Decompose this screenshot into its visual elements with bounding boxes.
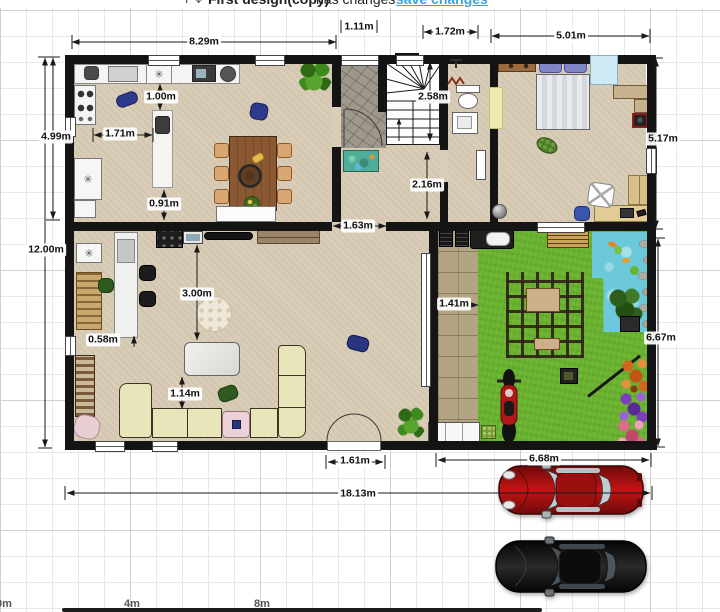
bath-mat[interactable] (489, 87, 503, 129)
window-kitchen-2[interactable] (255, 55, 285, 66)
outdoor-speaker[interactable] (455, 230, 469, 247)
fish (621, 257, 630, 264)
dining-chair[interactable] (214, 189, 229, 204)
wall-mid-right[interactable] (386, 222, 655, 231)
dim-island-top: 1.00m (144, 91, 178, 104)
dim-patio-door: 1.61m (338, 455, 372, 468)
bed-duvet[interactable] (536, 74, 590, 130)
car-black[interactable] (493, 536, 649, 597)
changes-status: has changes (316, 0, 395, 7)
dim-bar-gap: 0.58m (86, 334, 120, 347)
garden-box-icon (564, 372, 573, 380)
fridge[interactable]: ✳ (74, 158, 102, 200)
dim-total-height: 12.00m (26, 244, 66, 257)
planter-box[interactable] (620, 316, 640, 332)
dining-chair[interactable] (277, 189, 292, 204)
save-changes-link[interactable]: save changes (396, 0, 488, 7)
garden-path[interactable] (438, 230, 478, 441)
wall-mid-left[interactable] (65, 222, 332, 231)
wall-bath-bedroom[interactable] (490, 55, 498, 222)
dining-chair[interactable] (277, 143, 292, 158)
bar-stool[interactable] (139, 265, 156, 281)
laptop[interactable] (620, 208, 634, 218)
dim-kitchen-height: 4.99m (39, 131, 73, 144)
corner-sofa-top[interactable] (613, 85, 648, 99)
car-red[interactable] (496, 461, 646, 519)
freezer-counter[interactable]: ✳ (146, 64, 172, 84)
dining-sideboard[interactable] (216, 206, 276, 222)
garden-planter-green[interactable] (481, 425, 496, 439)
patio-door-threshold[interactable] (327, 441, 381, 451)
zoom-icon[interactable]: ✥ (194, 0, 203, 6)
freezer-living[interactable]: ✳ (76, 243, 102, 263)
motorcycle[interactable] (494, 368, 524, 444)
sofa-seats[interactable] (152, 408, 222, 438)
horizontal-scrollbar-thumb[interactable] (62, 608, 542, 612)
floorplan-canvas[interactable]: { "header": { "pan_icon": "✛", "zoom_ico… (0, 0, 720, 612)
bedroom-window-glass[interactable] (590, 55, 618, 85)
wall-kitchen-hall-lower[interactable] (332, 147, 341, 222)
island-sink[interactable] (155, 116, 170, 134)
bag-green[interactable] (98, 278, 114, 293)
dim-hallway: 2.16m (410, 179, 444, 192)
wall-right[interactable] (647, 55, 656, 450)
kitchen-sink[interactable] (108, 66, 138, 82)
bookshelf[interactable] (75, 355, 95, 417)
sofa-chaise[interactable] (119, 383, 152, 438)
kitchen-cabinet[interactable] (74, 200, 96, 218)
round-rug[interactable] (196, 296, 232, 332)
media-shelf[interactable] (257, 230, 320, 244)
pergola-bench[interactable] (534, 338, 560, 350)
window-bottom-2[interactable] (152, 441, 178, 452)
dim-wall-opening: 1.63m (341, 220, 375, 233)
toilet-tank[interactable] (456, 85, 480, 93)
pergola-table[interactable] (526, 288, 560, 312)
dim-staircase: 2.58m (416, 91, 450, 104)
speaker[interactable] (632, 113, 648, 128)
dim-island-bottom: 0.91m (147, 198, 181, 211)
dim-path-width: 1.41m (437, 298, 471, 311)
top-toolbar: ✛ ✥ First design(copy) has changes save … (0, 0, 720, 8)
dining-chair[interactable] (214, 166, 229, 181)
fruit-bowl[interactable] (238, 164, 262, 188)
office-chair[interactable] (586, 181, 615, 208)
bathroom-sink-basin (457, 116, 472, 129)
bar-stool[interactable] (139, 291, 156, 307)
design-title: First design(copy) (208, 0, 329, 7)
backpack[interactable] (574, 206, 590, 221)
window-bottom-1[interactable] (95, 441, 125, 452)
toilet-bowl[interactable] (458, 93, 478, 109)
dim-stair-top: 1.72m (433, 26, 467, 39)
dim-top-width: 8.29m (187, 36, 221, 49)
remote[interactable] (232, 420, 241, 429)
fireplace[interactable] (156, 230, 183, 248)
dim-front-door: 1.11m (342, 21, 375, 34)
counter-appliance[interactable] (220, 66, 236, 82)
microwave-screen (196, 69, 206, 78)
potted-plant[interactable] (396, 406, 426, 440)
sofa-corner[interactable] (250, 408, 278, 438)
kitchen-dining-floor[interactable] (74, 64, 332, 222)
front-door-opening[interactable] (341, 55, 379, 66)
outdoor-speaker[interactable] (439, 230, 453, 247)
living-garden-sill[interactable] (421, 253, 431, 387)
wall-left[interactable] (65, 55, 74, 450)
potted-plant[interactable] (298, 60, 332, 94)
bbq-lid (486, 232, 510, 246)
lily-pad (614, 246, 622, 254)
dim-island-left: 1.71m (103, 128, 137, 141)
kettle[interactable] (84, 66, 99, 80)
dining-chair[interactable] (277, 166, 292, 181)
pan-icon[interactable]: ✛ (182, 0, 191, 6)
soundbar[interactable] (204, 232, 253, 240)
dim-bedroom-width: 5.01m (554, 30, 588, 43)
dim-total-width: 18.13m (338, 488, 378, 501)
dim-garden-height: 6.67m (644, 332, 678, 345)
window-bedroom-garden[interactable] (537, 222, 585, 233)
dim-bedroom-height: 5.17m (646, 133, 680, 146)
dim-rug-gap: 3.00m (180, 288, 214, 301)
aquarium[interactable] (343, 150, 379, 172)
window-left-2[interactable] (65, 336, 76, 356)
coffee-table[interactable] (184, 342, 240, 376)
dim-sofa-gap: 1.14m (168, 388, 202, 401)
ball[interactable] (492, 204, 507, 219)
window-bedroom-right[interactable] (646, 148, 657, 174)
wall-kitchen-hall-upper[interactable] (332, 55, 341, 107)
bathroom-door[interactable] (476, 150, 486, 180)
window-kitchen-1[interactable] (148, 55, 180, 66)
window-stairs[interactable] (396, 55, 424, 66)
dining-chair[interactable] (214, 143, 229, 158)
stove[interactable] (74, 85, 96, 125)
wall-entrance-stub[interactable] (378, 55, 387, 112)
scale-label-0: 0m (0, 598, 12, 610)
dim-garden-width: 6.68m (527, 453, 561, 466)
doorway-bathroom (440, 150, 448, 182)
corner-sofa-side[interactable] (634, 99, 648, 113)
bar-sink[interactable] (117, 239, 135, 263)
tv-screen (186, 234, 200, 241)
doorway-kitchen-entrance (332, 107, 341, 147)
sofa-arm[interactable] (278, 345, 306, 438)
